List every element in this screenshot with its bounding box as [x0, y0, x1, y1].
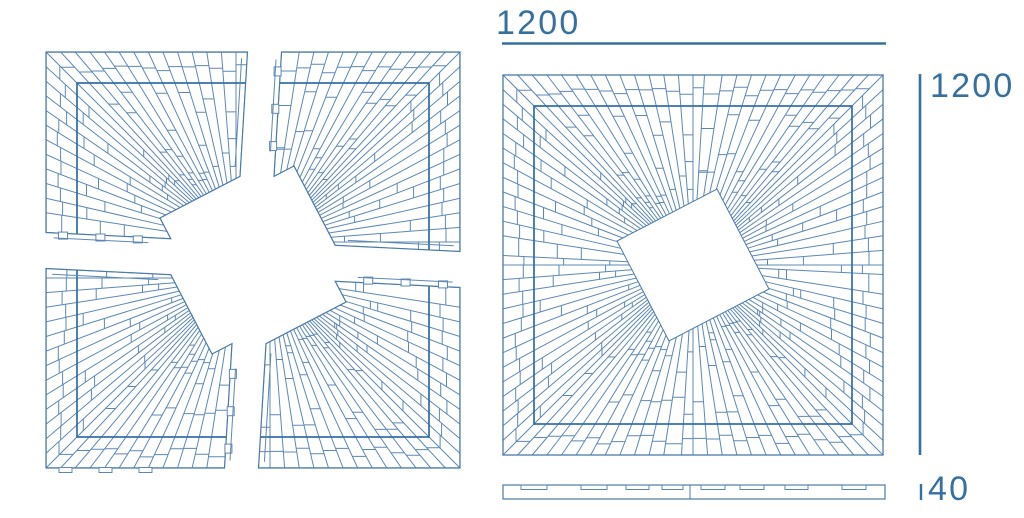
- svg-text:40: 40: [928, 470, 970, 508]
- svg-text:1200: 1200: [930, 67, 1014, 105]
- svg-text:1200: 1200: [496, 4, 580, 42]
